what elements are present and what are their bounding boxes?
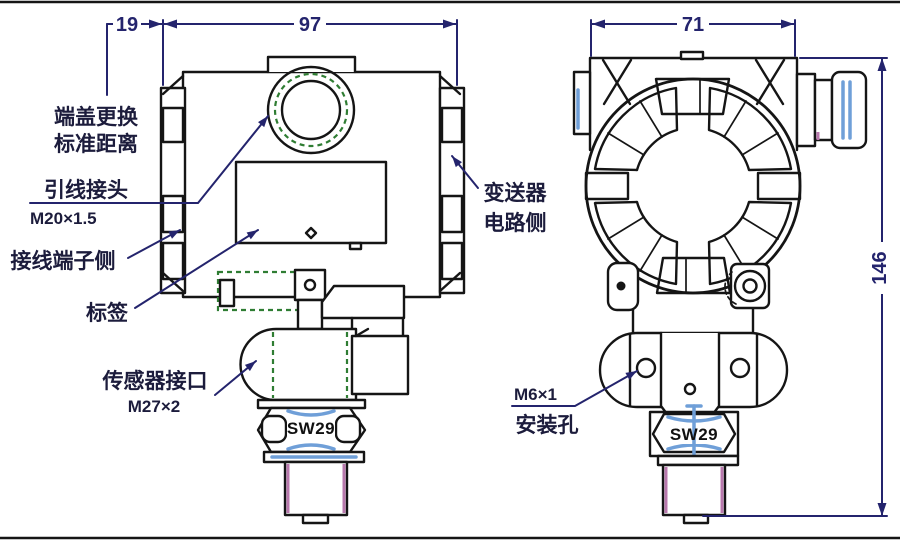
process-connection-side xyxy=(241,329,409,400)
sensor-port-label: 传感器接口 xyxy=(102,369,208,393)
callout-sensor-port: 传感器接口 M27×2 xyxy=(102,361,257,416)
end-cap-terminal-side xyxy=(161,76,185,293)
callout-terminal-side: 接线端子侧 xyxy=(11,230,181,273)
mounting-hole-thread: M6×1 xyxy=(514,385,557,404)
dim-text-71: 71 xyxy=(682,14,704,36)
callout-circuit-side: 变送器 电路侧 xyxy=(452,156,547,235)
wrench-size-side: SW29 xyxy=(287,419,335,438)
hex-nut-side: SW29 xyxy=(258,400,365,452)
sensor-stem-side xyxy=(264,452,364,523)
tag-label: 标签 xyxy=(86,301,129,325)
sensor-port-thread: M27×2 xyxy=(128,397,180,416)
terminal-side-label: 接线端子侧 xyxy=(11,249,116,273)
sensor-stem-front xyxy=(658,456,738,523)
cable-entry-thread: M20×1.5 xyxy=(30,209,97,228)
dim-text-19: 19 xyxy=(116,14,138,36)
dim-text-97: 97 xyxy=(299,14,321,36)
dimension-19: 19 xyxy=(107,13,162,95)
cable-entry-label: 引线接头 xyxy=(44,178,128,202)
technical-drawing-page: SW29 xyxy=(0,0,900,540)
mounting-hole-label: 安装孔 xyxy=(516,413,579,437)
circuit-side-line2: 电路侧 xyxy=(484,211,547,235)
transmitter-dimension-drawing: SW29 xyxy=(0,0,900,540)
wrench-size-front: SW29 xyxy=(670,425,718,444)
callout-mounting-hole: M6×1 安装孔 xyxy=(512,371,637,437)
circuit-side-line1: 变送器 xyxy=(484,181,548,205)
cable-gland xyxy=(797,72,866,148)
dimension-71: 71 xyxy=(591,13,795,56)
cap-note-line1: 端盖更换 xyxy=(54,105,139,129)
neck-front xyxy=(608,263,769,333)
front-view: SW29 xyxy=(574,52,866,523)
housing-side xyxy=(183,72,440,297)
end-cap-circuit-side xyxy=(440,76,464,293)
side-view: SW29 xyxy=(161,57,464,523)
dim-text-146: 146 xyxy=(869,251,891,284)
callout-cap-clearance: 端盖更换 标准距离 xyxy=(54,105,139,156)
cap-note-line2: 标准距离 xyxy=(54,132,138,156)
hex-nut-front: SW29 xyxy=(650,406,738,462)
